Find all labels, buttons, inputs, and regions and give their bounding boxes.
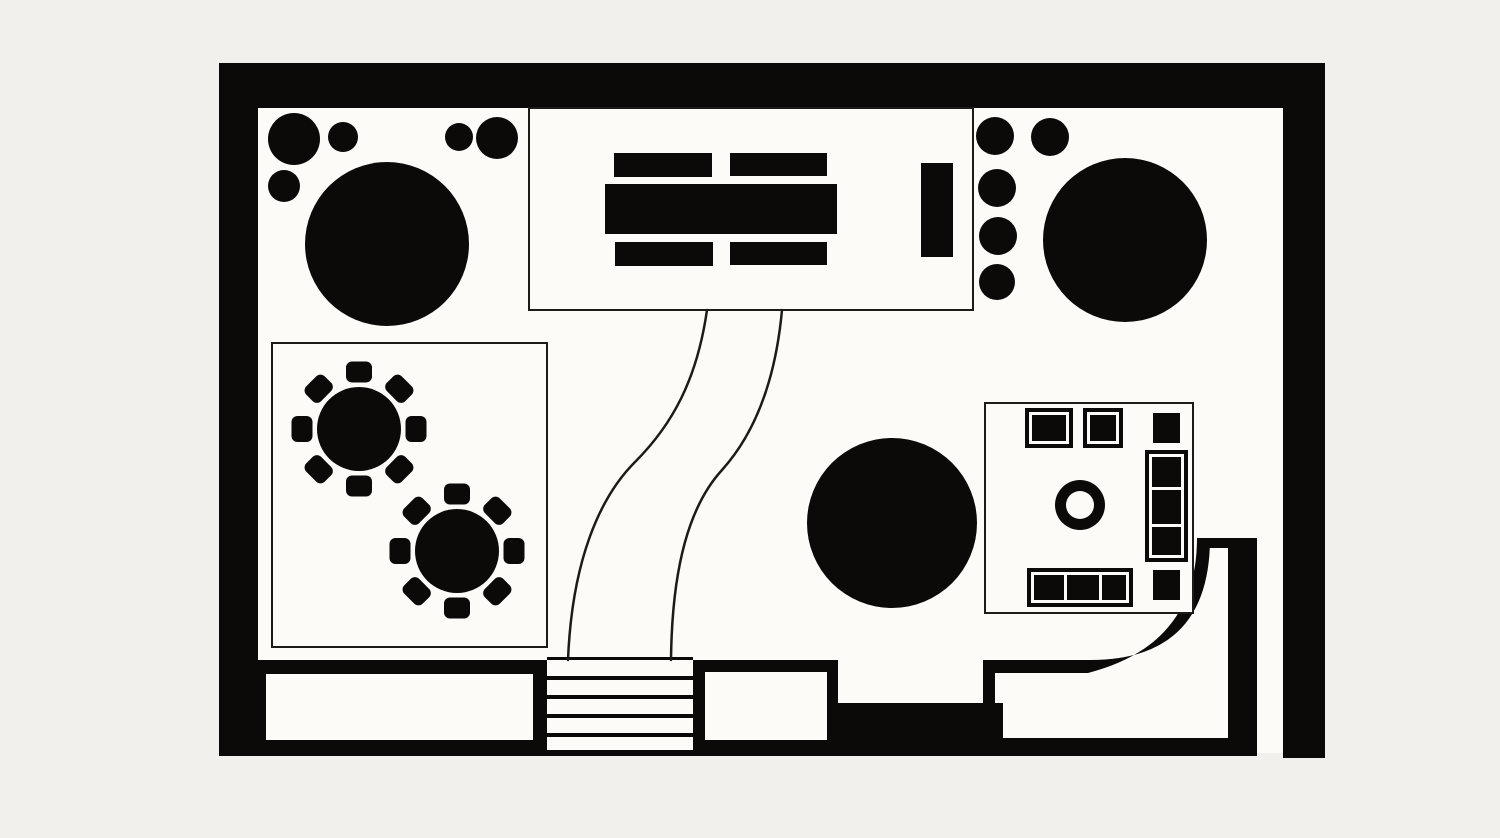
planter-small-topleft-4 xyxy=(268,170,300,202)
wall-top xyxy=(219,63,1325,108)
chair xyxy=(406,416,427,442)
dining-table-1 xyxy=(292,362,427,497)
wall-post xyxy=(983,660,995,740)
stair-tread-2 xyxy=(547,695,693,699)
conference-chair-ne xyxy=(730,153,827,176)
door-opening-mid xyxy=(705,672,827,740)
table-top xyxy=(317,387,401,471)
sofa-right-divider-2 xyxy=(1149,524,1184,527)
planter-topright-1 xyxy=(976,117,1014,155)
dining-table-2 xyxy=(390,484,525,619)
coffee-table-ring-inner xyxy=(1066,491,1094,519)
armchair-2-cushion xyxy=(1090,415,1116,441)
round-table-large-topright xyxy=(1043,158,1207,322)
round-table-large-topleft xyxy=(305,162,469,326)
door-opening-left xyxy=(266,674,533,740)
table-top xyxy=(415,509,499,593)
chair xyxy=(444,484,470,505)
stair-tread-3 xyxy=(547,714,693,718)
sofa-bottom-divider-2 xyxy=(1099,572,1102,603)
planter-small-topleft-3 xyxy=(476,117,518,159)
conference-chair-nw xyxy=(614,153,712,177)
side-table-top-right xyxy=(1153,413,1180,443)
conference-table xyxy=(605,184,837,234)
sofa-right-divider-1 xyxy=(1149,487,1184,490)
conference-chair-sw xyxy=(615,242,713,266)
sofa-bottom-divider-1 xyxy=(1064,572,1067,603)
stair-tread-4 xyxy=(547,733,693,737)
chair xyxy=(292,416,313,442)
curved-wall-cap xyxy=(1207,538,1257,548)
side-table-bottom-right xyxy=(1153,570,1180,600)
wall-left xyxy=(219,63,258,756)
lectern xyxy=(921,163,953,257)
chair xyxy=(504,538,525,564)
armchair-1-cushion xyxy=(1032,415,1066,441)
planter-topright-4 xyxy=(979,217,1017,255)
planter-small-topleft-2 xyxy=(445,123,473,151)
stair-tread-1 xyxy=(547,676,693,680)
chair xyxy=(444,598,470,619)
wall-right xyxy=(1283,63,1325,758)
planter-large-topleft xyxy=(268,113,320,165)
wall-right-inner xyxy=(1228,548,1257,753)
planter-topright-5 xyxy=(979,264,1015,300)
chair xyxy=(346,362,372,383)
sofa-right-cushions xyxy=(1152,457,1181,555)
wall-bottom-right-band xyxy=(997,738,1257,753)
floor-plan-svg xyxy=(0,0,1500,838)
conference-chair-se xyxy=(730,242,827,265)
bench-platform xyxy=(838,703,1003,753)
chair xyxy=(346,476,372,497)
planter-topright-2 xyxy=(1031,118,1069,156)
round-table-large-center xyxy=(807,438,977,608)
floor-plan-canvas xyxy=(0,0,1500,838)
planter-topright-3 xyxy=(978,169,1016,207)
sofa-bottom-cushions xyxy=(1034,575,1126,600)
planter-small-topleft-1 xyxy=(328,122,358,152)
chair xyxy=(390,538,411,564)
